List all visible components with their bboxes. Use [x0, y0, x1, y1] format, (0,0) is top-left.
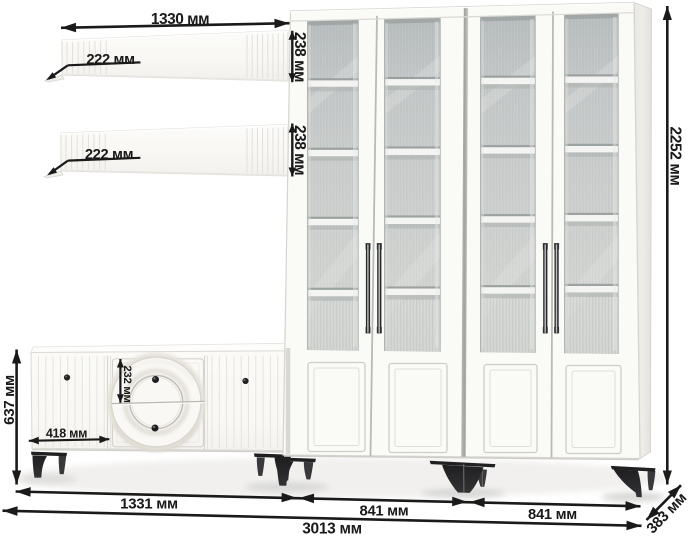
- svg-text:1330 мм: 1330 мм: [151, 11, 209, 28]
- svg-text:238 мм: 238 мм: [291, 125, 308, 175]
- svg-text:2252 мм: 2252 мм: [666, 127, 683, 186]
- svg-text:238 мм: 238 мм: [291, 32, 308, 82]
- svg-text:637 мм: 637 мм: [1, 375, 18, 425]
- svg-text:222 мм: 222 мм: [85, 147, 133, 163]
- svg-text:3013 мм: 3013 мм: [302, 520, 362, 536]
- svg-text:1331 мм: 1331 мм: [120, 496, 178, 513]
- svg-text:232 мм: 232 мм: [121, 365, 133, 402]
- svg-text:841 мм: 841 мм: [360, 503, 409, 519]
- svg-text:418 мм: 418 мм: [46, 427, 87, 441]
- svg-text:222 мм: 222 мм: [86, 52, 134, 68]
- svg-text:841 мм: 841 мм: [528, 507, 577, 523]
